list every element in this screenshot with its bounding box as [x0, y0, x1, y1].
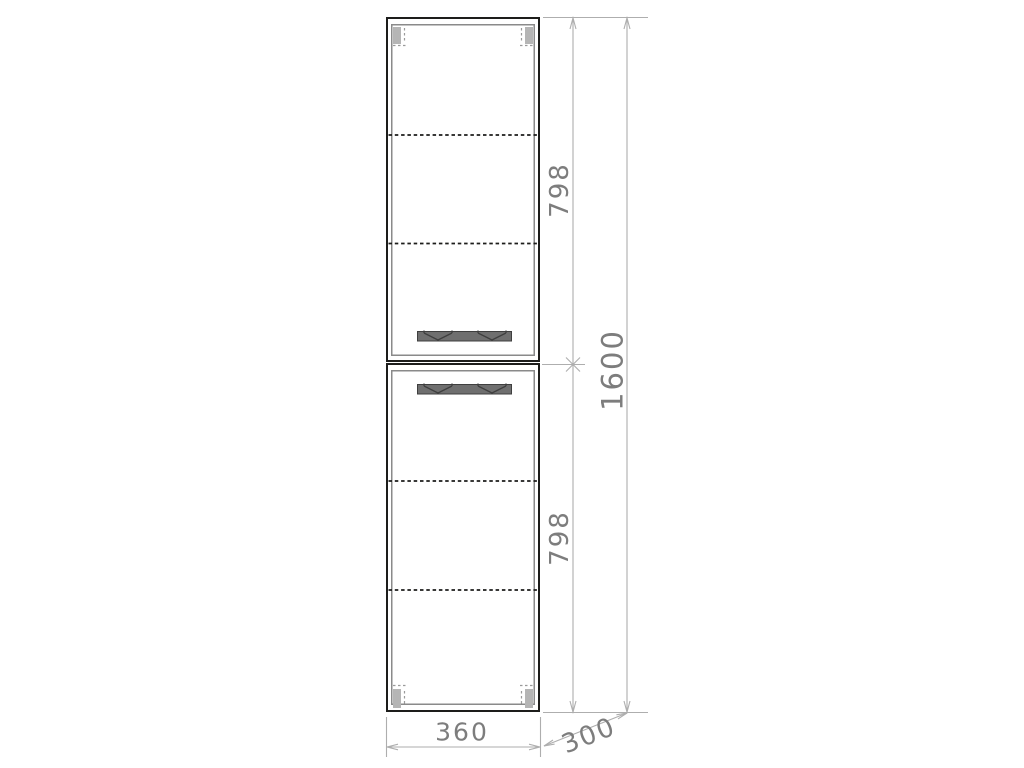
hinge-plate-icon — [393, 689, 401, 708]
hinge-plate-icon — [525, 27, 533, 44]
technical-drawing-canvas: 798 798 1600 360 300 — [0, 0, 1024, 768]
cabinet-upper-carcass-outline — [387, 18, 539, 361]
hinge-plate-icon — [525, 689, 533, 708]
dimension-label-width: 360 — [435, 720, 489, 745]
lower-door-handle — [418, 384, 512, 395]
arrow-diagonal-icon — [616, 713, 627, 719]
hinge-plate-icon — [393, 27, 401, 44]
cabinet-front-elevation — [0, 0, 1024, 768]
hinge-top-left — [393, 27, 406, 46]
upper-door-outline — [392, 25, 535, 356]
hinge-top-right — [520, 27, 533, 46]
dimension-label-total-height: 1600 — [599, 329, 628, 411]
lower-door-outline — [392, 371, 535, 705]
dimension-label-upper-section-height: 798 — [547, 162, 573, 218]
dimension-label-lower-section-height: 798 — [547, 510, 573, 566]
upper-door-handle — [418, 331, 512, 342]
cabinet-lower-carcass-outline — [387, 364, 539, 711]
